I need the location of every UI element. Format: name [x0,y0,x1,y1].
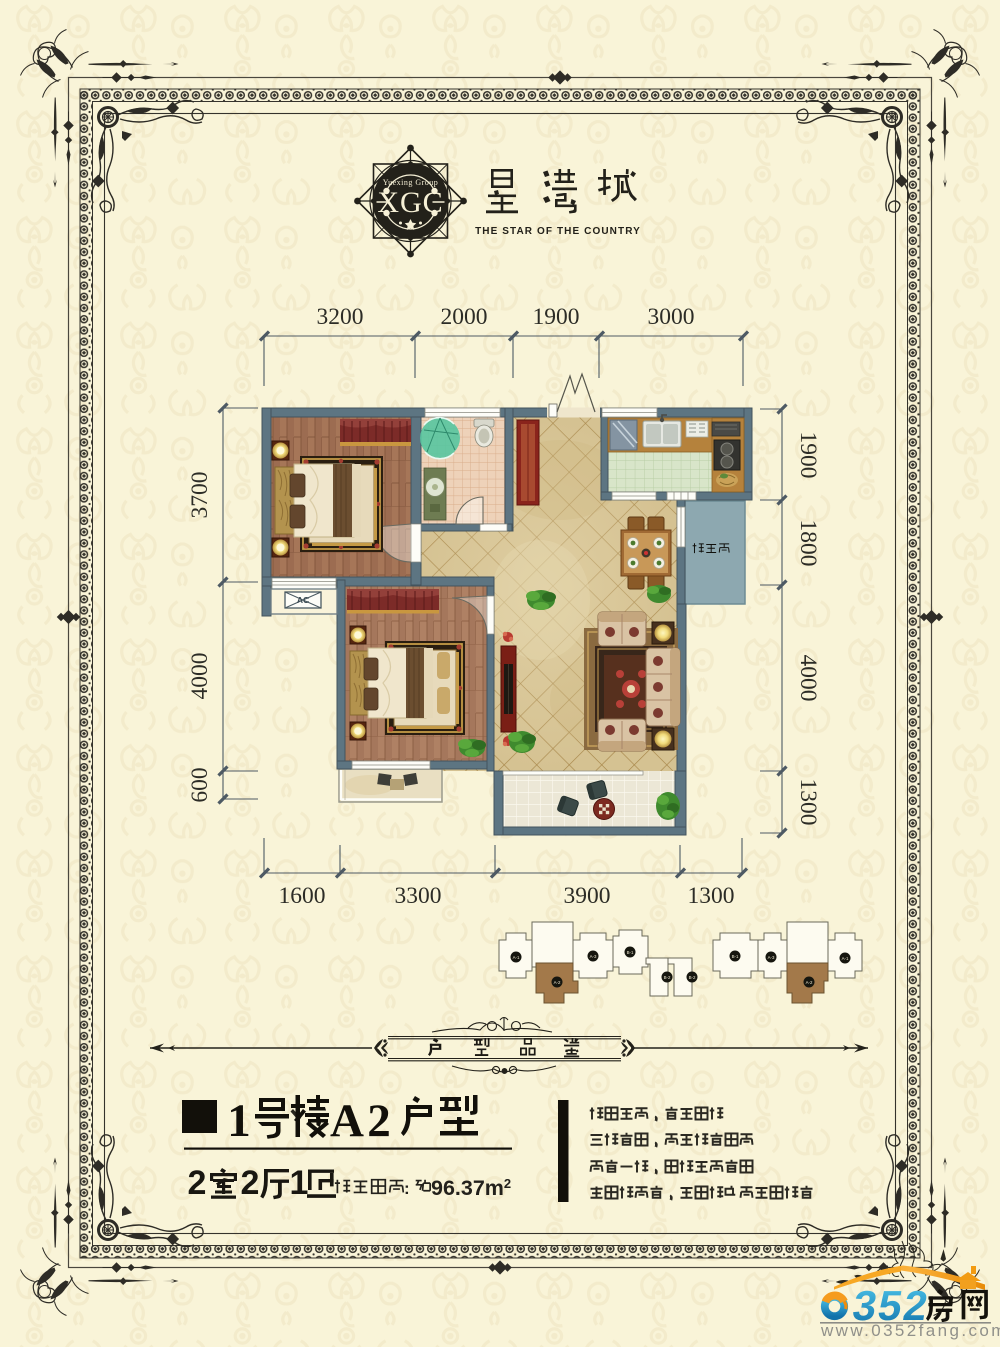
svg-text:B-2: B-2 [664,975,671,980]
svg-text:4000: 4000 [187,653,213,700]
svg-text:1: 1 [227,1095,251,1147]
svg-text:2: 2 [188,1164,207,1202]
svg-text:www.0352fang.com: www.0352fang.com [820,1321,1000,1340]
svg-text:1900: 1900 [533,304,580,330]
svg-text:A-3: A-3 [590,954,597,959]
svg-text:1900: 1900 [795,432,820,479]
svg-text:B-2: B-2 [689,975,696,980]
svg-text:A-1: A-1 [513,955,520,960]
svg-text:1600: 1600 [279,883,326,909]
svg-text:1800: 1800 [795,520,820,567]
svg-text:4000: 4000 [795,655,820,702]
svg-text:2000: 2000 [441,304,488,330]
svg-text:A-3: A-3 [768,955,775,960]
svg-text:3200: 3200 [317,304,364,330]
svg-text:AC: AC [297,595,309,605]
svg-text:3700: 3700 [187,472,213,519]
svg-text:THE STAR OF THE COUNTRY: THE STAR OF THE COUNTRY [475,226,641,237]
svg-text:B-1: B-1 [627,950,634,955]
svg-text:2: 2 [241,1164,260,1202]
svg-text:3000: 3000 [648,304,695,330]
svg-text:3300: 3300 [395,883,442,909]
svg-text:A-1: A-1 [842,956,849,961]
svg-text:A-2: A-2 [554,980,561,985]
svg-text:A: A [330,1095,364,1147]
svg-text:2: 2 [367,1095,391,1147]
svg-text:600: 600 [187,767,213,802]
svg-text:1: 1 [290,1164,309,1202]
svg-text:B-1: B-1 [732,954,739,959]
svg-text:A-2: A-2 [806,980,813,985]
svg-text::: : [404,1179,410,1198]
svg-text:96.37m2: 96.37m2 [431,1176,511,1200]
svg-text:1300: 1300 [795,779,820,826]
